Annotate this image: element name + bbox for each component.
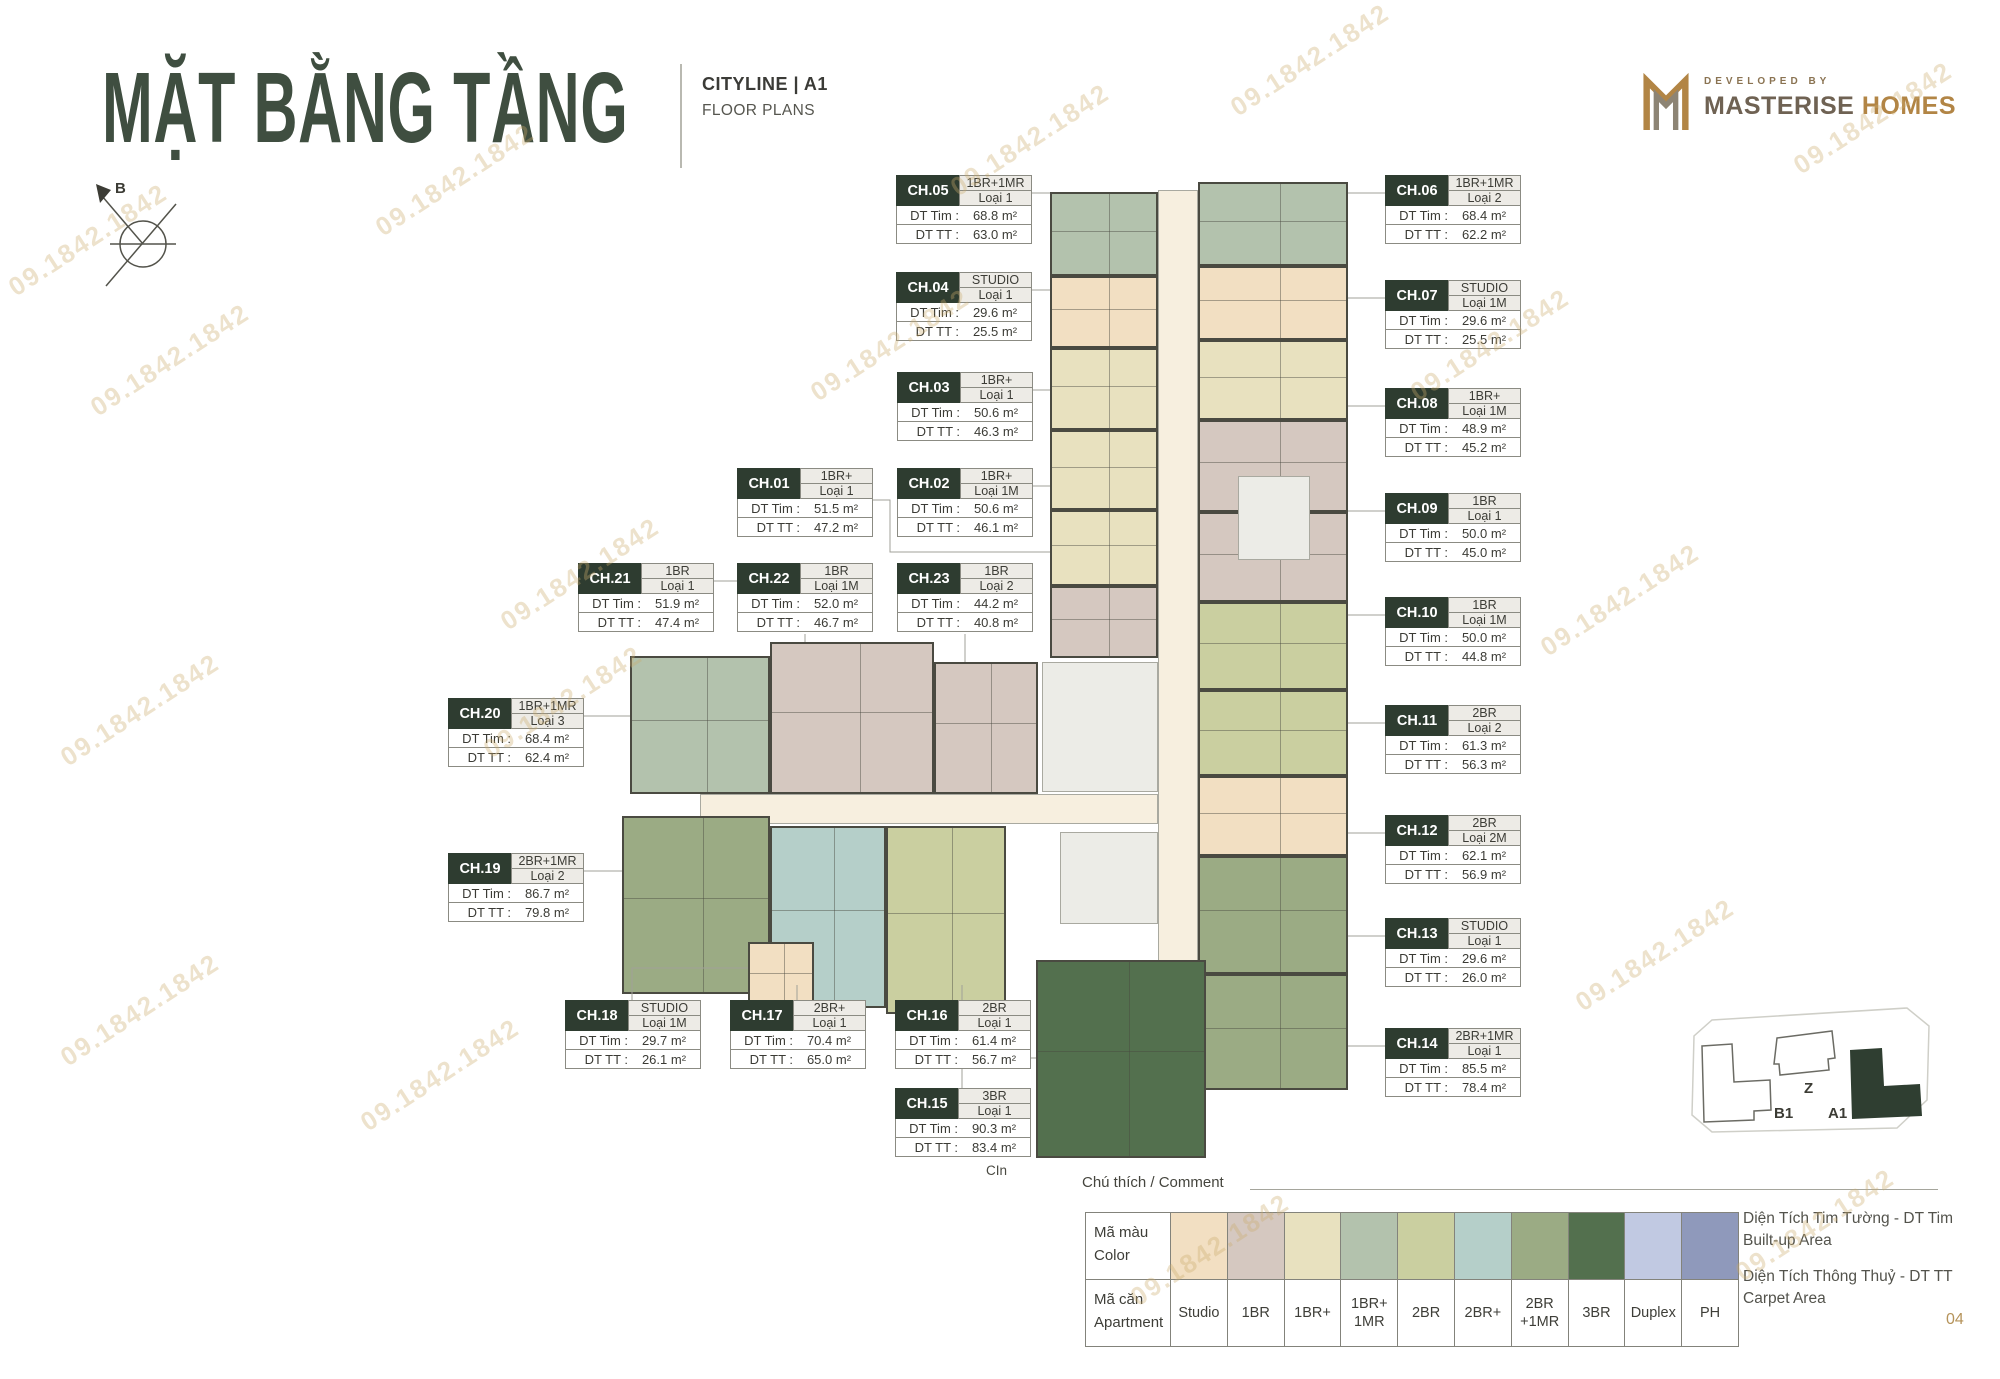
dt-tt-label: DT TT : bbox=[579, 615, 641, 630]
dt-tim-row: DT Tim : 68.8 m² bbox=[896, 205, 1032, 225]
dt-tim-label: DT Tim : bbox=[898, 501, 960, 516]
dt-tt-label: DT TT : bbox=[1386, 1080, 1448, 1095]
site-key-map: Z B1 A1 bbox=[1682, 1000, 1940, 1138]
legend-note-carpet: Diện Tích Thông Thuỷ - DT TT Carpet Area bbox=[1743, 1266, 1953, 1311]
unit-variant: Loại 1M bbox=[1448, 295, 1521, 311]
dt-tim-label: DT Tim : bbox=[897, 208, 959, 223]
unit-type: STUDIO bbox=[1448, 918, 1521, 934]
unit-variant: Loại 1 bbox=[800, 483, 873, 499]
unit-type-column: 1BR+1MR Loại 2 bbox=[1449, 175, 1521, 206]
unit-type: STUDIO bbox=[1448, 280, 1521, 296]
unit-type-column: 1BR Loại 1 bbox=[642, 563, 714, 594]
unit-variant: Loại 1 bbox=[1448, 1043, 1521, 1059]
dt-tt-label: DT TT : bbox=[738, 520, 800, 535]
unit-code: CH.22 bbox=[737, 563, 801, 594]
legend-label-1BR+: 1BR+ bbox=[1284, 1280, 1341, 1346]
dt-tt-label: DT TT : bbox=[898, 520, 960, 535]
dt-tim-label: DT Tim : bbox=[1386, 738, 1448, 753]
legend-apartment-label-en: Apartment bbox=[1094, 1311, 1170, 1334]
dt-tt-value: 79.8 m² bbox=[511, 905, 583, 920]
dt-tim-row: DT Tim : 48.9 m² bbox=[1385, 418, 1521, 438]
dt-tt-row: DT TT : 26.0 m² bbox=[1385, 967, 1521, 987]
plan-unit-3BR bbox=[1036, 960, 1206, 1158]
site-label-a1: A1 bbox=[1828, 1105, 1847, 1122]
unit-code: CH.21 bbox=[578, 563, 642, 594]
unit-variant: Loại 2 bbox=[960, 578, 1033, 594]
dt-tim-value: 86.7 m² bbox=[511, 886, 583, 901]
dt-tim-label: DT Tim : bbox=[738, 501, 800, 516]
unit-type: 1BR+ bbox=[960, 372, 1033, 388]
dt-tt-value: 47.4 m² bbox=[641, 615, 713, 630]
dt-tt-value: 25.5 m² bbox=[1448, 332, 1520, 347]
unit-info-box: CH.17 2BR+ Loại 1 DT Tim : 70.4 m² DT TT… bbox=[730, 1000, 866, 1069]
unit-box-header: CH.21 1BR Loại 1 bbox=[578, 563, 714, 594]
dt-tim-value: 68.4 m² bbox=[1448, 208, 1520, 223]
legend-color-row-label: Mã màu Color bbox=[1086, 1213, 1170, 1279]
dt-tt-value: 26.1 m² bbox=[628, 1052, 700, 1067]
unit-info-box: CH.14 2BR+1MR Loại 1 DT Tim : 85.5 m² DT… bbox=[1385, 1028, 1521, 1097]
unit-type-column: 1BR+ Loại 1M bbox=[961, 468, 1033, 499]
unit-type: STUDIO bbox=[628, 1000, 701, 1016]
dt-tim-row: DT Tim : 68.4 m² bbox=[448, 728, 584, 748]
note-carpet-en: Carpet Area bbox=[1743, 1288, 1953, 1310]
unit-code: CH.04 bbox=[896, 272, 960, 303]
dt-tt-row: DT TT : 25.5 m² bbox=[1385, 329, 1521, 349]
dt-tt-row: DT TT : 56.7 m² bbox=[895, 1049, 1031, 1069]
dt-tim-value: 29.6 m² bbox=[959, 305, 1031, 320]
dt-tim-value: 68.8 m² bbox=[959, 208, 1031, 223]
dt-tt-row: DT TT : 46.7 m² bbox=[737, 612, 873, 632]
dt-tt-value: 62.4 m² bbox=[511, 750, 583, 765]
plan-unit-Studio bbox=[748, 942, 814, 1008]
unit-type: 1BR+1MR bbox=[1448, 175, 1521, 191]
dt-tt-value: 56.7 m² bbox=[958, 1052, 1030, 1067]
dt-tt-label: DT TT : bbox=[897, 227, 959, 242]
dt-tim-label: DT Tim : bbox=[738, 596, 800, 611]
unit-info-box: CH.07 STUDIO Loại 1M DT Tim : 29.6 m² DT… bbox=[1385, 280, 1521, 349]
plan-unit-1BR bbox=[770, 642, 934, 794]
dt-tim-row: DT Tim : 85.5 m² bbox=[1385, 1058, 1521, 1078]
dt-tt-label: DT TT : bbox=[898, 424, 960, 439]
dt-tt-label: DT TT : bbox=[566, 1052, 628, 1067]
dt-tim-value: 29.7 m² bbox=[628, 1033, 700, 1048]
unit-box-header: CH.06 1BR+1MR Loại 2 bbox=[1385, 175, 1521, 206]
dt-tim-value: 62.1 m² bbox=[1448, 848, 1520, 863]
dt-tim-label: DT Tim : bbox=[1386, 848, 1448, 863]
unit-code: CH.11 bbox=[1385, 705, 1449, 736]
brand-homes: HOMES bbox=[1862, 92, 1956, 120]
unit-info-box: CH.03 1BR+ Loại 1 DT Tim : 50.6 m² DT TT… bbox=[897, 372, 1033, 441]
unit-box-header: CH.08 1BR+ Loại 1M bbox=[1385, 388, 1521, 419]
watermark-text: 09.1842.1842 bbox=[1535, 537, 1705, 663]
dt-tt-label: DT TT : bbox=[738, 615, 800, 630]
unit-type: 2BR bbox=[1448, 815, 1521, 831]
watermark-text: 09.1842.1842 bbox=[55, 647, 225, 773]
unit-variant: Loại 1 bbox=[641, 578, 714, 594]
plan-unit-Studio bbox=[1198, 266, 1348, 340]
unit-variant: Loại 2 bbox=[1448, 190, 1521, 206]
unit-type: 2BR bbox=[958, 1000, 1031, 1016]
unit-box-header: CH.11 2BR Loại 2 bbox=[1385, 705, 1521, 736]
plan-core bbox=[1238, 476, 1310, 560]
legend-apartment-label-vi: Mã căn bbox=[1094, 1288, 1170, 1311]
unit-type-column: 2BR+1MR Loại 2 bbox=[512, 853, 584, 884]
unit-type-column: 3BR Loại 1 bbox=[959, 1088, 1031, 1119]
plan-unit-1BR+ bbox=[1198, 340, 1348, 420]
dt-tt-label: DT TT : bbox=[731, 1052, 793, 1067]
unit-info-box: CH.06 1BR+1MR Loại 2 DT Tim : 68.4 m² DT… bbox=[1385, 175, 1521, 244]
page-title: MẶT BẰNG TẦNG bbox=[102, 56, 628, 161]
dt-tim-value: 68.4 m² bbox=[511, 731, 583, 746]
dt-tim-value: 51.5 m² bbox=[800, 501, 872, 516]
dt-tt-row: DT TT : 46.3 m² bbox=[897, 421, 1033, 441]
dt-tt-label: DT TT : bbox=[1386, 545, 1448, 560]
legend-color-row: Mã màu Color bbox=[1086, 1213, 1738, 1279]
unit-type: 1BR bbox=[641, 563, 714, 579]
unit-box-header: CH.07 STUDIO Loại 1M bbox=[1385, 280, 1521, 311]
dt-tt-label: DT TT : bbox=[898, 615, 960, 630]
unit-info-box: CH.20 1BR+1MR Loại 3 DT Tim : 68.4 m² DT… bbox=[448, 698, 584, 767]
unit-info-box: CH.09 1BR Loại 1 DT Tim : 50.0 m² DT TT … bbox=[1385, 493, 1521, 562]
legend-swatch-1BR+1MR bbox=[1340, 1213, 1397, 1279]
unit-info-box: CH.13 STUDIO Loại 1 DT Tim : 29.6 m² DT … bbox=[1385, 918, 1521, 987]
dt-tt-value: 83.4 m² bbox=[958, 1140, 1030, 1155]
dt-tim-label: DT Tim : bbox=[1386, 526, 1448, 541]
brand-name: MASTERISE HOMES bbox=[1704, 92, 1956, 121]
brand-masterise: MASTERISE bbox=[1704, 92, 1854, 120]
legend-header: Chú thích / Comment bbox=[1082, 1174, 1224, 1191]
dt-tim-value: 48.9 m² bbox=[1448, 421, 1520, 436]
unit-info-box: CH.10 1BR Loại 1M DT Tim : 50.0 m² DT TT… bbox=[1385, 597, 1521, 666]
plan-unit-1BR+1MR bbox=[630, 656, 770, 794]
note-carpet-vi: Diện Tích Thông Thuỷ - DT TT bbox=[1743, 1266, 1953, 1288]
masterise-logo-icon bbox=[1640, 72, 1692, 130]
unit-code: CH.08 bbox=[1385, 388, 1449, 419]
plan-unit-1BR+ bbox=[1050, 510, 1158, 586]
unit-code: CH.13 bbox=[1385, 918, 1449, 949]
unit-variant: Loại 2 bbox=[1448, 720, 1521, 736]
dt-tim-row: DT Tim : 51.9 m² bbox=[578, 593, 714, 613]
dt-tt-row: DT TT : 78.4 m² bbox=[1385, 1077, 1521, 1097]
unit-variant: Loại 1 bbox=[959, 287, 1032, 303]
dt-tt-row: DT TT : 56.3 m² bbox=[1385, 754, 1521, 774]
unit-box-header: CH.13 STUDIO Loại 1 bbox=[1385, 918, 1521, 949]
dt-tim-label: DT Tim : bbox=[579, 596, 641, 611]
unit-box-header: CH.03 1BR+ Loại 1 bbox=[897, 372, 1033, 403]
dt-tim-row: DT Tim : 29.6 m² bbox=[1385, 310, 1521, 330]
dt-tt-value: 46.7 m² bbox=[800, 615, 872, 630]
note-builtup-en: Built-up Area bbox=[1743, 1230, 1953, 1252]
legend-color-label-vi: Mã màu bbox=[1094, 1221, 1170, 1244]
unit-box-header: CH.01 1BR+ Loại 1 bbox=[737, 468, 873, 499]
dt-tt-value: 44.8 m² bbox=[1448, 649, 1520, 664]
dt-tim-row: DT Tim : 50.6 m² bbox=[897, 402, 1033, 422]
dt-tt-label: DT TT : bbox=[1386, 757, 1448, 772]
unit-code: CH.02 bbox=[897, 468, 961, 499]
dt-tt-value: 78.4 m² bbox=[1448, 1080, 1520, 1095]
legend-label-PH: PH bbox=[1681, 1280, 1738, 1346]
building-z-outline bbox=[1774, 1031, 1835, 1075]
dt-tt-value: 56.3 m² bbox=[1448, 757, 1520, 772]
dt-tt-row: DT TT : 56.9 m² bbox=[1385, 864, 1521, 884]
dt-tim-row: DT Tim : 51.5 m² bbox=[737, 498, 873, 518]
header-divider bbox=[680, 64, 682, 168]
unit-box-header: CH.14 2BR+1MR Loại 1 bbox=[1385, 1028, 1521, 1059]
unit-type-column: 1BR Loại 2 bbox=[961, 563, 1033, 594]
dt-tim-value: 50.0 m² bbox=[1448, 630, 1520, 645]
legend-apartment-row-label: Mã căn Apartment bbox=[1086, 1280, 1170, 1346]
unit-type-column: 1BR+1MR Loại 3 bbox=[512, 698, 584, 729]
unit-type-column: 2BR+ Loại 1 bbox=[794, 1000, 866, 1031]
dt-tt-label: DT TT : bbox=[896, 1052, 958, 1067]
unit-variant: Loại 2 bbox=[511, 868, 584, 884]
plan-core bbox=[1042, 662, 1158, 792]
unit-code: CH.07 bbox=[1385, 280, 1449, 311]
legend-swatch-2BR+1MR bbox=[1511, 1213, 1568, 1279]
plan-unit-1BR+ bbox=[1050, 430, 1158, 510]
header-subtitle-block: CITYLINE | A1 FLOOR PLANS bbox=[702, 74, 828, 120]
unit-type: 2BR+ bbox=[793, 1000, 866, 1016]
dt-tim-row: DT Tim : 68.4 m² bbox=[1385, 205, 1521, 225]
unit-box-header: CH.22 1BR Loại 1M bbox=[737, 563, 873, 594]
page-number: 04 bbox=[1946, 1311, 1964, 1329]
unit-type-column: 1BR Loại 1M bbox=[801, 563, 873, 594]
dt-tt-value: 46.1 m² bbox=[960, 520, 1032, 535]
unit-code: CH.06 bbox=[1385, 175, 1449, 206]
dt-tt-row: DT TT : 65.0 m² bbox=[730, 1049, 866, 1069]
dt-tim-label: DT Tim : bbox=[449, 731, 511, 746]
unit-variant: Loại 1M bbox=[960, 483, 1033, 499]
unit-type: 1BR bbox=[1448, 597, 1521, 613]
unit-box-header: CH.09 1BR Loại 1 bbox=[1385, 493, 1521, 524]
unit-code: CH.17 bbox=[730, 1000, 794, 1031]
dt-tim-value: 29.6 m² bbox=[1448, 313, 1520, 328]
dt-tim-value: 70.4 m² bbox=[793, 1033, 865, 1048]
unit-code: CH.20 bbox=[448, 698, 512, 729]
dt-tt-row: DT TT : 83.4 m² bbox=[895, 1137, 1031, 1157]
plan-unit-2BR bbox=[1198, 690, 1348, 776]
project-name: CITYLINE | A1 bbox=[702, 74, 828, 95]
dt-tt-label: DT TT : bbox=[1386, 867, 1448, 882]
dt-tim-label: DT Tim : bbox=[898, 596, 960, 611]
unit-box-header: CH.19 2BR+1MR Loại 2 bbox=[448, 853, 584, 884]
unit-info-box: CH.15 3BR Loại 1 DT Tim : 90.3 m² DT TT … bbox=[895, 1088, 1031, 1157]
unit-code: CH.05 bbox=[896, 175, 960, 206]
dt-tt-label: DT TT : bbox=[1386, 440, 1448, 455]
dt-tt-label: DT TT : bbox=[1386, 970, 1448, 985]
plan-unit-2BR+1MR bbox=[1198, 974, 1348, 1090]
unit-box-header: CH.16 2BR Loại 1 bbox=[895, 1000, 1031, 1031]
unit-type-column: 1BR+ Loại 1 bbox=[961, 372, 1033, 403]
dt-tim-row: DT Tim : 70.4 m² bbox=[730, 1030, 866, 1050]
plan-unit-Studio bbox=[1198, 776, 1348, 856]
legend-swatch-PH bbox=[1681, 1213, 1738, 1279]
legend-apartment-row: Mã căn Apartment Studio1BR1BR+1BR+ 1MR2B… bbox=[1086, 1279, 1738, 1346]
unit-type: 1BR+1MR bbox=[959, 175, 1032, 191]
legend-label-Studio: Studio bbox=[1170, 1280, 1227, 1346]
dt-tt-label: DT TT : bbox=[449, 750, 511, 765]
unit-info-box: CH.11 2BR Loại 2 DT Tim : 61.3 m² DT TT … bbox=[1385, 705, 1521, 774]
developer-logo-text: DEVELOPED BY MASTERISE HOMES bbox=[1704, 72, 1956, 121]
dt-tt-value: 65.0 m² bbox=[793, 1052, 865, 1067]
dt-tt-value: 63.0 m² bbox=[959, 227, 1031, 242]
plan-unit-1BR+1MR bbox=[1198, 182, 1348, 266]
plan-unit-2BR+1MR bbox=[1198, 856, 1348, 974]
dt-tim-label: DT Tim : bbox=[449, 886, 511, 901]
dt-tt-row: DT TT : 25.5 m² bbox=[896, 321, 1032, 341]
dt-tim-value: 52.0 m² bbox=[800, 596, 872, 611]
unit-code: CH.15 bbox=[895, 1088, 959, 1119]
developer-logo: DEVELOPED BY MASTERISE HOMES bbox=[1640, 72, 1956, 130]
dt-tim-label: DT Tim : bbox=[897, 305, 959, 320]
unit-code: CH.01 bbox=[737, 468, 801, 499]
dt-tt-value: 25.5 m² bbox=[959, 324, 1031, 339]
watermark-text: 09.1842.1842 bbox=[1570, 892, 1740, 1018]
unit-type: 1BR+1MR bbox=[511, 698, 584, 714]
brochure-page: MẶT BẰNG TẦNG CITYLINE | A1 FLOOR PLANS … bbox=[0, 0, 2000, 1379]
dt-tt-row: DT TT : 46.1 m² bbox=[897, 517, 1033, 537]
plan-unit-1BR bbox=[1050, 586, 1158, 658]
unit-variant: Loại 3 bbox=[511, 713, 584, 729]
unit-type: 1BR+ bbox=[960, 468, 1033, 484]
legend-label-2BR: 2BR bbox=[1397, 1280, 1454, 1346]
dt-tt-row: DT TT : 47.4 m² bbox=[578, 612, 714, 632]
unit-type: 1BR+ bbox=[800, 468, 873, 484]
unit-box-header: CH.12 2BR Loại 2M bbox=[1385, 815, 1521, 846]
unit-type-column: STUDIO Loại 1M bbox=[629, 1000, 701, 1031]
unit-type-column: STUDIO Loại 1M bbox=[1449, 280, 1521, 311]
unit-type: 1BR bbox=[1448, 493, 1521, 509]
legend-swatch-3BR bbox=[1568, 1213, 1625, 1279]
dt-tim-label: DT Tim : bbox=[1386, 1061, 1448, 1076]
legend-swatch-1BR+ bbox=[1284, 1213, 1341, 1279]
legend-label-Duplex: Duplex bbox=[1624, 1280, 1681, 1346]
note-builtup-vi: Diện Tích Tim Tường - DT Tim bbox=[1743, 1208, 1953, 1230]
watermark-text: 09.1842.1842 bbox=[85, 297, 255, 423]
unit-type-column: 1BR+ Loại 1M bbox=[1449, 388, 1521, 419]
unit-box-header: CH.20 1BR+1MR Loại 3 bbox=[448, 698, 584, 729]
unit-type: 2BR+1MR bbox=[1448, 1028, 1521, 1044]
watermark-text: 09.1842.1842 bbox=[355, 1012, 525, 1138]
legend-swatch-1BR bbox=[1227, 1213, 1284, 1279]
unit-box-header: CH.02 1BR+ Loại 1M bbox=[897, 468, 1033, 499]
dt-tim-row: DT Tim : 29.6 m² bbox=[1385, 948, 1521, 968]
developed-by-label: DEVELOPED BY bbox=[1704, 76, 1956, 87]
unit-info-box: CH.21 1BR Loại 1 DT Tim : 51.9 m² DT TT … bbox=[578, 563, 714, 632]
unit-variant: Loại 1 bbox=[958, 1015, 1031, 1031]
dt-tim-row: DT Tim : 50.0 m² bbox=[1385, 523, 1521, 543]
unit-variant: Loại 2M bbox=[1448, 830, 1521, 846]
dt-tim-value: 50.6 m² bbox=[960, 501, 1032, 516]
dt-tt-label: DT TT : bbox=[449, 905, 511, 920]
dt-tt-label: DT TT : bbox=[897, 324, 959, 339]
unit-type: 2BR+1MR bbox=[511, 853, 584, 869]
unit-code: CH.09 bbox=[1385, 493, 1449, 524]
dt-tim-label: DT Tim : bbox=[1386, 951, 1448, 966]
unit-code: CH.23 bbox=[897, 563, 961, 594]
dt-tim-row: DT Tim : 90.3 m² bbox=[895, 1118, 1031, 1138]
dt-tim-row: DT Tim : 44.2 m² bbox=[897, 593, 1033, 613]
dt-tt-row: DT TT : 62.2 m² bbox=[1385, 224, 1521, 244]
unit-box-header: CH.04 STUDIO Loại 1 bbox=[896, 272, 1032, 303]
plan-unit-1BR bbox=[934, 662, 1038, 794]
unit-info-box: CH.12 2BR Loại 2M DT Tim : 62.1 m² DT TT… bbox=[1385, 815, 1521, 884]
unit-info-box: CH.23 1BR Loại 2 DT Tim : 44.2 m² DT TT … bbox=[897, 563, 1033, 632]
page-subtitle: FLOOR PLANS bbox=[702, 102, 828, 120]
dt-tim-row: DT Tim : 50.0 m² bbox=[1385, 627, 1521, 647]
dt-tt-label: DT TT : bbox=[896, 1140, 958, 1155]
plan-unit-2BR bbox=[1198, 602, 1348, 690]
unit-info-box: CH.16 2BR Loại 1 DT Tim : 61.4 m² DT TT … bbox=[895, 1000, 1031, 1069]
dt-tim-value: 51.9 m² bbox=[641, 596, 713, 611]
dt-tim-row: DT Tim : 62.1 m² bbox=[1385, 845, 1521, 865]
unit-box-header: CH.05 1BR+1MR Loại 1 bbox=[896, 175, 1032, 206]
unit-variant: Loại 1M bbox=[1448, 403, 1521, 419]
unit-variant: Loại 1 bbox=[1448, 508, 1521, 524]
unit-info-box: CH.18 STUDIO Loại 1M DT Tim : 29.7 m² DT… bbox=[565, 1000, 701, 1069]
legend-swatch-Duplex bbox=[1624, 1213, 1681, 1279]
unit-type-column: 2BR Loại 2M bbox=[1449, 815, 1521, 846]
legend-note-builtup: Diện Tích Tim Tường - DT Tim Built-up Ar… bbox=[1743, 1208, 1953, 1253]
dt-tt-label: DT TT : bbox=[1386, 332, 1448, 347]
dt-tt-row: DT TT : 26.1 m² bbox=[565, 1049, 701, 1069]
dt-tim-value: 85.5 m² bbox=[1448, 1061, 1520, 1076]
dt-tt-label: DT TT : bbox=[1386, 227, 1448, 242]
unit-info-box: CH.04 STUDIO Loại 1 DT Tim : 29.6 m² DT … bbox=[896, 272, 1032, 341]
dt-tt-row: DT TT : 47.2 m² bbox=[737, 517, 873, 537]
dt-tt-row: DT TT : 79.8 m² bbox=[448, 902, 584, 922]
unit-code: CH.14 bbox=[1385, 1028, 1449, 1059]
dt-tt-row: DT TT : 45.0 m² bbox=[1385, 542, 1521, 562]
dt-tt-value: 45.0 m² bbox=[1448, 545, 1520, 560]
dt-tt-row: DT TT : 40.8 m² bbox=[897, 612, 1033, 632]
dt-tt-label: DT TT : bbox=[1386, 649, 1448, 664]
legend-label-1BR+1MR: 1BR+ 1MR bbox=[1340, 1280, 1397, 1346]
unit-info-box: CH.01 1BR+ Loại 1 DT Tim : 51.5 m² DT TT… bbox=[737, 468, 873, 537]
dt-tim-label: DT Tim : bbox=[566, 1033, 628, 1048]
plan-unit-2BR bbox=[886, 826, 1006, 1014]
dt-tt-value: 45.2 m² bbox=[1448, 440, 1520, 455]
dt-tim-label: DT Tim : bbox=[1386, 421, 1448, 436]
unit-variant: Loại 1M bbox=[628, 1015, 701, 1031]
plan-unit-1BR+ bbox=[1050, 348, 1158, 430]
dt-tim-value: 61.4 m² bbox=[958, 1033, 1030, 1048]
dt-tim-value: 29.6 m² bbox=[1448, 951, 1520, 966]
plan-note: CIn bbox=[986, 1163, 1007, 1178]
dt-tt-value: 62.2 m² bbox=[1448, 227, 1520, 242]
legend-table: Mã màu Color Mã căn Apartment Studio1BR1… bbox=[1085, 1212, 1739, 1347]
dt-tim-value: 50.0 m² bbox=[1448, 526, 1520, 541]
dt-tt-value: 26.0 m² bbox=[1448, 970, 1520, 985]
legend-label-2BR+1MR: 2BR +1MR bbox=[1511, 1280, 1568, 1346]
unit-variant: Loại 1 bbox=[960, 387, 1033, 403]
unit-info-box: CH.08 1BR+ Loại 1M DT Tim : 48.9 m² DT T… bbox=[1385, 388, 1521, 457]
unit-info-box: CH.02 1BR+ Loại 1M DT Tim : 50.6 m² DT T… bbox=[897, 468, 1033, 537]
unit-info-box: CH.19 2BR+1MR Loại 2 DT Tim : 86.7 m² DT… bbox=[448, 853, 584, 922]
dt-tim-value: 90.3 m² bbox=[958, 1121, 1030, 1136]
unit-code: CH.03 bbox=[897, 372, 961, 403]
compass-icon: B bbox=[88, 178, 188, 293]
watermark-text: 09.1842.1842 bbox=[1225, 0, 1395, 123]
unit-type: STUDIO bbox=[959, 272, 1032, 288]
unit-type-column: STUDIO Loại 1 bbox=[960, 272, 1032, 303]
legend-label-2BR+: 2BR+ bbox=[1454, 1280, 1511, 1346]
dt-tim-row: DT Tim : 29.6 m² bbox=[896, 302, 1032, 322]
unit-code: CH.19 bbox=[448, 853, 512, 884]
unit-info-box: CH.22 1BR Loại 1M DT Tim : 52.0 m² DT TT… bbox=[737, 563, 873, 632]
unit-type-column: 1BR+ Loại 1 bbox=[801, 468, 873, 499]
unit-box-header: CH.23 1BR Loại 2 bbox=[897, 563, 1033, 594]
